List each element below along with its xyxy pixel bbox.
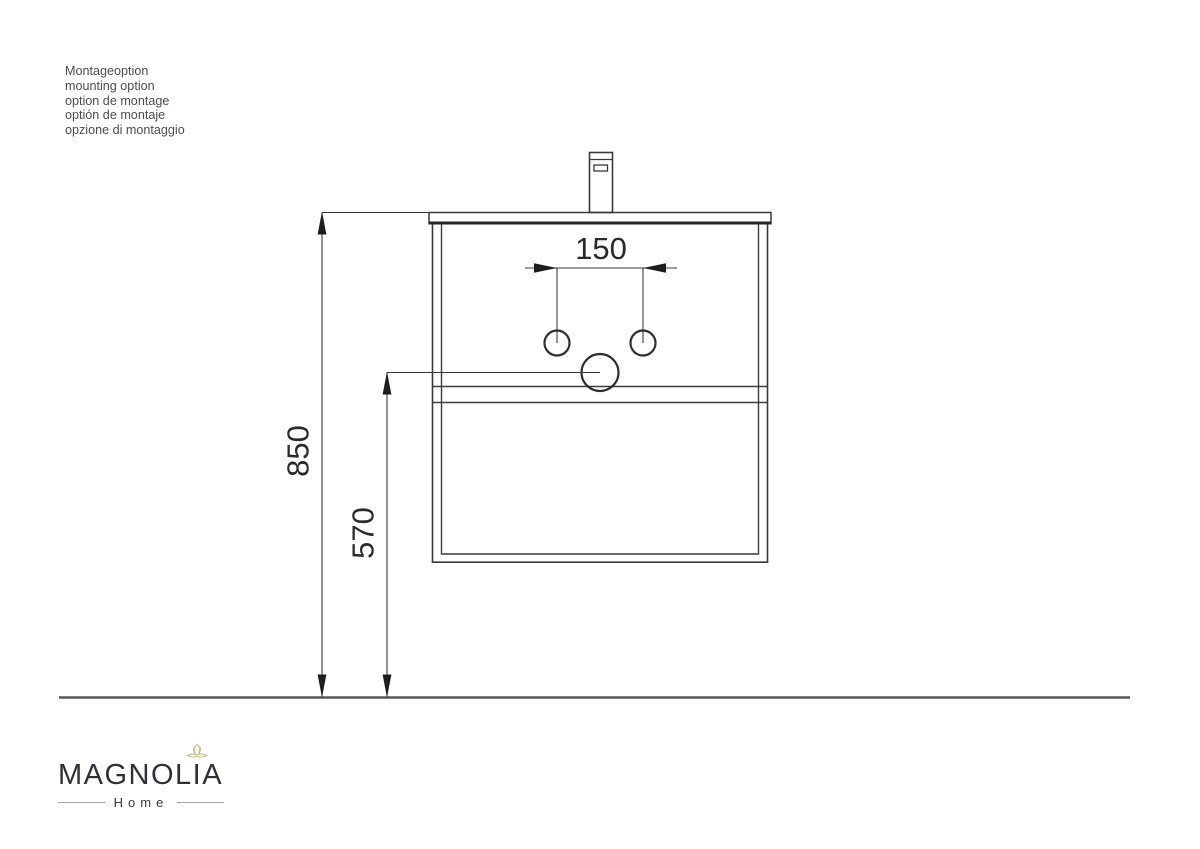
technical-drawing: 150 850 570 <box>0 0 1200 849</box>
brand-name: MAGNOLIA <box>58 759 224 792</box>
dimension-label-570: 570 <box>346 507 381 559</box>
dimension-drain-height: 570 <box>346 372 601 698</box>
dimension-label-150: 150 <box>575 231 627 266</box>
page: Montageoption mounting option option de … <box>0 0 1200 849</box>
faucet-mounting-holes <box>545 268 656 356</box>
dimension-label-850: 850 <box>281 425 316 477</box>
dimension-hole-spacing: 150 <box>525 231 677 273</box>
dimension-mounting-height: 850 <box>281 212 430 698</box>
faucet <box>590 153 613 213</box>
brand-subtitle: Home <box>105 795 178 810</box>
countertop <box>429 212 772 225</box>
brand-subtitle-row: Home <box>58 795 224 810</box>
brand-logo: MAGNOLIA Home <box>58 740 224 810</box>
subtitle-rule-left <box>58 802 105 803</box>
lotus-flower-icon <box>185 742 209 759</box>
vanity-cabinet <box>432 225 768 564</box>
subtitle-rule-right <box>177 802 224 803</box>
